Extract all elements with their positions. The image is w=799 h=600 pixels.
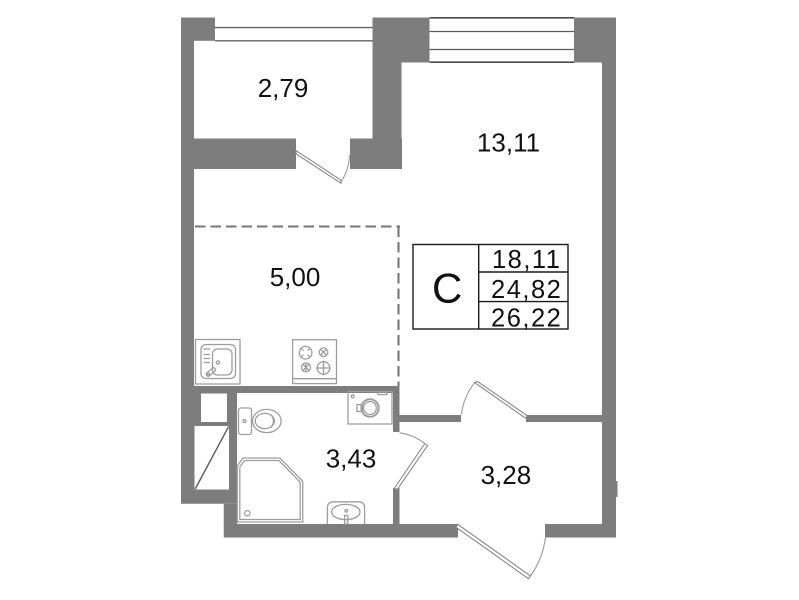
svg-text:3,43: 3,43	[326, 443, 377, 473]
svg-text:24,82: 24,82	[491, 276, 562, 304]
svg-text:5,00: 5,00	[270, 262, 321, 292]
svg-text:18,11: 18,11	[492, 246, 561, 274]
svg-text:26,22: 26,22	[491, 305, 562, 333]
svg-text:2,79: 2,79	[258, 73, 309, 103]
svg-text:С: С	[432, 265, 462, 312]
svg-text:3,28: 3,28	[481, 460, 532, 490]
svg-text:13,11: 13,11	[477, 127, 540, 157]
